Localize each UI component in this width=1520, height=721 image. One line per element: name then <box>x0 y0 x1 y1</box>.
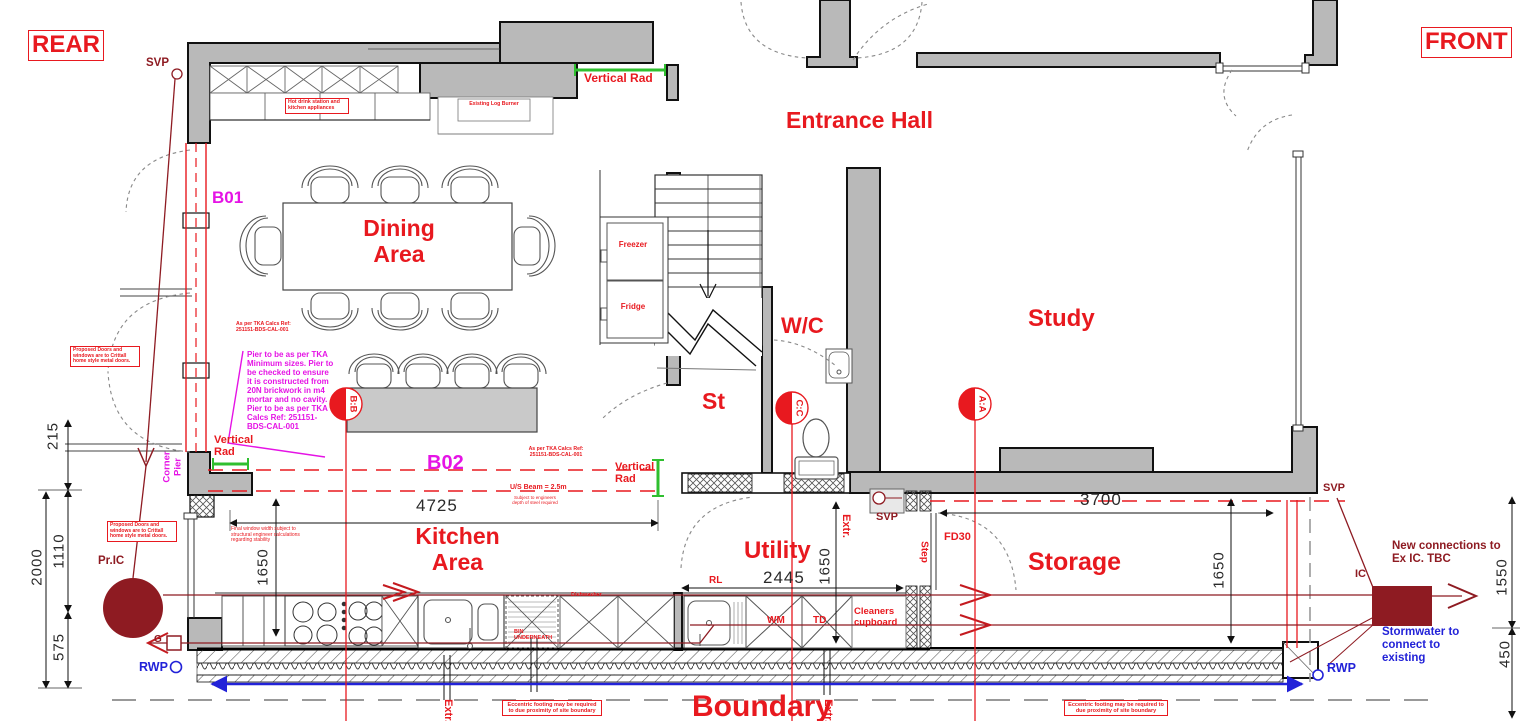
dim-2445: 2445 <box>763 568 805 587</box>
dim-1650-utility: 1650 <box>818 547 835 584</box>
floor-plan-drawing <box>0 0 1520 721</box>
dim-215: 215 <box>46 422 63 450</box>
fridge-label: Fridge <box>611 303 655 312</box>
dim-1550: 1550 <box>1495 558 1512 595</box>
kitchen-sink-icon <box>418 595 504 649</box>
svp-mid-label: SVP <box>876 511 898 523</box>
rl-label: RL <box>709 575 722 586</box>
hot-drink-note: Hot drink station and kitchen appliances <box>285 98 349 114</box>
radiator-top-label: Vertical Rad <box>584 72 653 85</box>
crittall-note-top: Proposed Doors and windows are to Critta… <box>70 346 140 367</box>
extr-kitchen-label: Extr. <box>442 699 454 721</box>
radiator-right-label: Vertical Rad <box>615 461 657 486</box>
pr-ic-manhole-icon <box>103 578 163 638</box>
stormwater-note: Stormwater to connect to existing <box>1382 626 1470 665</box>
toilet-icon <box>795 419 838 479</box>
new-connections-note: New connections to Ex IC. TBC <box>1392 540 1502 566</box>
dim-1110: 1110 <box>52 533 69 568</box>
step-label: Step <box>918 541 929 563</box>
dim-2000: 2000 <box>30 548 47 585</box>
us-beam-subnote: Subject to engineers depth of steel requ… <box>510 495 560 505</box>
crittall-note-bottom: Proposed Doors and windows are to Critta… <box>107 521 177 542</box>
wc-basin-icon <box>826 349 852 383</box>
pier-note: Pier to be as per TKA Minimum sizes. Pie… <box>247 351 335 432</box>
gully-icon <box>167 636 181 650</box>
svp-mid-icon <box>870 489 904 513</box>
tka-ref-note-top: As per TKA Calcs Ref: 251151-BDS-CAL-001 <box>236 322 296 334</box>
room-kitchen-area: Kitchen Area <box>405 524 510 576</box>
eccentric-footing-note-left: Eccentric footing may be required to due… <box>502 700 602 716</box>
fd30-label: FD30 <box>944 531 971 543</box>
svp-right-label: SVP <box>1323 482 1345 494</box>
dim-3700: 3700 <box>1080 490 1122 509</box>
ic-label: IC <box>1355 568 1366 580</box>
gully-label: G <box>154 634 162 645</box>
us-beam-note: U/S Beam = 2.5m <box>510 484 567 492</box>
rear-label: REAR <box>28 30 104 61</box>
section-cc-text: C:C <box>793 400 804 417</box>
wm-label: WM <box>767 615 785 626</box>
beam-b01-label: B01 <box>212 188 243 207</box>
ic-manhole-icon <box>1372 586 1432 626</box>
second-dining-table <box>347 354 546 432</box>
room-utility: Utility <box>744 538 811 565</box>
window-width-note: Final window width subject to structural… <box>231 527 301 544</box>
room-st: St <box>702 389 725 415</box>
room-dining-area: Dining Area <box>352 216 446 268</box>
svp-top-label: SVP <box>146 57 169 70</box>
boundary-label: Boundary <box>692 690 832 721</box>
corner-pier-note: Corner Pier <box>162 445 183 489</box>
radiator-left-label: Vertical Rad <box>214 434 262 459</box>
td-label: TD <box>813 615 826 626</box>
room-wc: W/C <box>781 314 824 339</box>
extr-boundary-label: Extr. <box>822 699 834 721</box>
front-label: FRONT <box>1421 27 1512 58</box>
floor-plan: REAR FRONT SVP Vertical Rad Hot drink st… <box>0 0 1520 721</box>
beam-b02-label: B02 <box>427 452 464 474</box>
room-storage: Storage <box>1028 548 1121 576</box>
eccentric-footing-note-right: Eccentric footing may be required to due… <box>1064 700 1168 716</box>
dim-450: 450 <box>1498 640 1515 668</box>
dim-1650-kitchen: 1650 <box>256 548 273 585</box>
rwp-right-label: RWP <box>1327 661 1356 675</box>
rwp-left-label: RWP <box>139 660 168 674</box>
log-burner-note: Existing Log Burner <box>462 102 526 108</box>
bin-label: BIN UNDERNEATH <box>514 629 556 641</box>
cleaners-cupboard-label: Cleaners cupboard <box>854 607 912 628</box>
dim-1650-storage: 1650 <box>1212 551 1229 588</box>
room-entrance-hall: Entrance Hall <box>786 108 933 134</box>
dim-575: 575 <box>52 633 69 661</box>
dishwasher-label: Dishwasher <box>571 592 602 598</box>
room-study: Study <box>1028 306 1095 333</box>
tka-ref-note-b02: As per TKA Calcs Ref: 251151-BDS-CAL-001 <box>525 447 587 459</box>
section-aa-text: A:A <box>976 396 987 413</box>
pr-ic-label: Pr.IC <box>98 555 124 568</box>
freezer-label: Freezer <box>611 241 655 250</box>
extr-utility-label: Extr. <box>840 514 852 538</box>
dim-4725: 4725 <box>416 496 458 515</box>
section-bb-text: B:B <box>347 396 358 413</box>
